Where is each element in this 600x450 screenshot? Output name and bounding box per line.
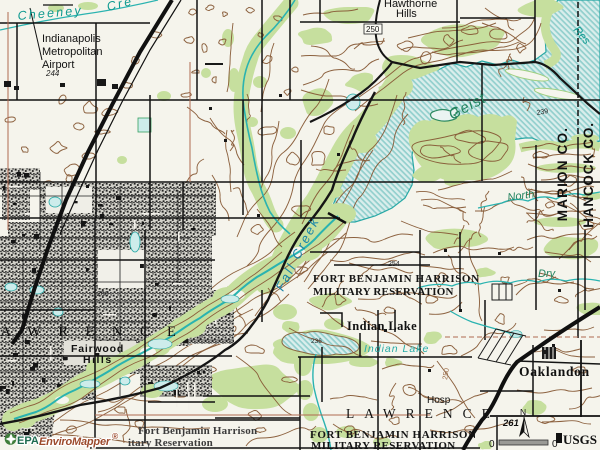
svg-text:Metropolitan: Metropolitan <box>42 46 103 58</box>
svg-text:®: ® <box>112 431 119 441</box>
svg-text:LAWRENCE: LAWRENCE <box>0 324 193 340</box>
svg-text:261: 261 <box>502 418 519 429</box>
svg-text:Hills: Hills <box>396 8 417 20</box>
svg-text:Oaklandon: Oaklandon <box>519 364 590 379</box>
svg-text:Indianapolis: Indianapolis <box>42 33 101 45</box>
svg-text:MILITARY RESERVATION: MILITARY RESERVATION <box>311 440 456 450</box>
svg-text:HANCOCK CO.: HANCOCK CO. <box>581 122 596 228</box>
svg-text:Fort Benjamin Harrison: Fort Benjamin Harrison <box>138 425 257 437</box>
svg-text:Dry: Dry <box>538 268 557 280</box>
svg-text:0: 0 <box>489 439 495 450</box>
svg-text:LAWRENCE: LAWRENCE <box>346 406 500 421</box>
svg-text:FORT BENJAMIN HARRISON: FORT BENJAMIN HARRISON <box>313 273 480 285</box>
svg-text:244: 244 <box>45 69 60 78</box>
svg-text:Hosp: Hosp <box>427 395 451 406</box>
svg-text:USGS: USGS <box>563 432 597 447</box>
svg-text:EPA: EPA <box>17 435 39 447</box>
svg-text:itary Reservation: itary Reservation <box>128 437 213 449</box>
svg-text:250: 250 <box>366 25 380 34</box>
svg-text:Indian Lake: Indian Lake <box>347 319 417 333</box>
svg-text:266: 266 <box>97 291 109 298</box>
svg-text:236: 236 <box>311 338 322 345</box>
svg-text:MARION CO.: MARION CO. <box>555 127 570 222</box>
svg-text:Indian Lake: Indian Lake <box>364 343 429 355</box>
svg-text:254: 254 <box>388 261 400 268</box>
svg-text:MILITARY RESERVATION: MILITARY RESERVATION <box>313 286 454 298</box>
svg-text:N: N <box>520 407 526 417</box>
svg-text:Hills: Hills <box>83 354 113 366</box>
svg-text:EnviroMapper: EnviroMapper <box>39 436 111 448</box>
